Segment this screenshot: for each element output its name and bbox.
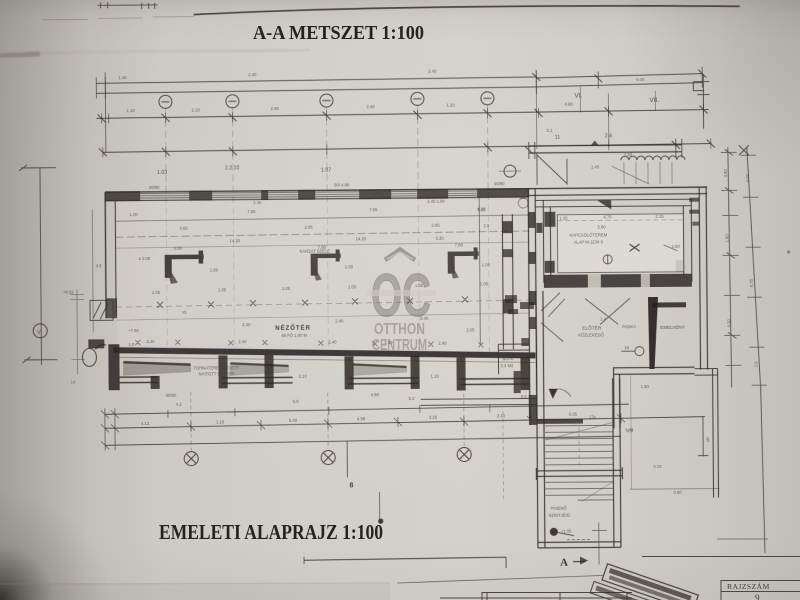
- svg-text:EMELVÉNY: EMELVÉNY: [660, 324, 685, 330]
- svg-text:4.10: 4.10: [726, 319, 731, 328]
- svg-text:7.65: 7.65: [369, 207, 378, 212]
- svg-text:6.35: 6.35: [569, 412, 578, 417]
- svg-text:x5: x5: [182, 310, 187, 315]
- svg-text:1.10: 1.10: [431, 374, 440, 379]
- svg-text:2.40: 2.40: [248, 72, 257, 77]
- svg-text:EMELETI ALAPRAJZ 1:100: EMELETI ALAPRAJZ 1:100: [159, 520, 383, 544]
- svg-text:4.65: 4.65: [179, 226, 188, 231]
- svg-text:4.88: 4.88: [564, 102, 573, 107]
- svg-text:1.10: 1.10: [126, 108, 135, 113]
- svg-text:1.40: 1.40: [625, 427, 634, 432]
- svg-text:48 FŐ 1.90 M: 48 FŐ 1.90 M: [281, 333, 307, 338]
- svg-text:2.05: 2.05: [304, 225, 313, 230]
- svg-text:11: 11: [555, 135, 561, 141]
- svg-text:1.80: 1.80: [724, 234, 729, 243]
- svg-text:2.45: 2.45: [270, 106, 279, 111]
- svg-text:14.20: 14.20: [230, 238, 241, 243]
- svg-text:4.13: 4.13: [141, 421, 150, 426]
- svg-text:2.40 1.90: 2.40 1.90: [427, 199, 445, 204]
- svg-text:V: V: [37, 330, 41, 336]
- svg-text:2.05: 2.05: [431, 223, 440, 228]
- svg-text:NYITOTT LÉGTÉR: NYITOTT LÉGTÉR: [199, 371, 235, 376]
- svg-text:2.45: 2.45: [366, 104, 375, 109]
- svg-text:1.90: 1.90: [477, 207, 486, 212]
- svg-text:1.03: 1.03: [157, 170, 167, 176]
- svg-text:4.88: 4.88: [371, 392, 380, 397]
- svg-text:3.30: 3.30: [435, 236, 444, 241]
- svg-text:2.40: 2.40: [146, 339, 155, 344]
- svg-text:3.25: 3.25: [429, 415, 438, 420]
- svg-text:1.4: 1.4: [600, 316, 607, 321]
- svg-text:2.40: 2.40: [438, 341, 447, 346]
- svg-text:1.20: 1.20: [129, 212, 138, 217]
- svg-text:2.2.10: 2.2.10: [225, 165, 240, 171]
- svg-text:2.0: 2.0: [521, 394, 528, 399]
- svg-text:2.05: 2.05: [466, 327, 475, 332]
- svg-text:1.35: 1.35: [559, 216, 568, 221]
- svg-text:4.05: 4.05: [745, 173, 750, 182]
- svg-text:S: S: [706, 438, 710, 444]
- svg-text:4.88: 4.88: [357, 416, 366, 421]
- svg-text:VII.: VII.: [649, 97, 659, 104]
- svg-text:16: 16: [624, 345, 629, 350]
- svg-text:14: 14: [71, 380, 76, 385]
- svg-text:1.07: 1.07: [321, 168, 331, 174]
- svg-text:4.2: 4.2: [176, 402, 183, 407]
- svg-text:2.60: 2.60: [672, 244, 681, 249]
- svg-text:1.10: 1.10: [216, 419, 225, 424]
- svg-text:VI.: VI.: [574, 93, 582, 100]
- svg-text:2.6: 2.6: [753, 361, 758, 368]
- svg-text:PADKA: PADKA: [622, 324, 636, 329]
- svg-text:ELŐTÉR: ELŐTÉR: [582, 324, 602, 331]
- svg-text:1.05: 1.05: [152, 290, 161, 295]
- svg-text:KAPCSOLÓTEREM: KAPCSOLÓTEREM: [569, 232, 607, 237]
- svg-text:7.65: 7.65: [247, 209, 256, 214]
- svg-text:1.45: 1.45: [591, 164, 600, 169]
- svg-text:1.20: 1.20: [446, 103, 455, 108]
- svg-text:2.9: 2.9: [483, 223, 490, 228]
- svg-text:2.10: 2.10: [191, 108, 200, 113]
- svg-text:KÖZLEKEDŐ: KÖZLEKEDŐ: [578, 332, 604, 337]
- svg-text:SZINTJÉIG: SZINTJÉIG: [549, 513, 570, 518]
- svg-text:1.05: 1.05: [282, 286, 291, 291]
- svg-text:6.00: 6.00: [636, 77, 645, 82]
- svg-text:2.40: 2.40: [253, 200, 262, 205]
- svg-text:KARZAT SZÉLE: KARZAT SZÉLE: [300, 249, 331, 254]
- svg-text:BÜFÉ: BÜFÉ: [502, 356, 513, 361]
- svg-text:1.40: 1.40: [118, 75, 127, 80]
- svg-text:OTTHON: OTTHON: [374, 321, 425, 338]
- svg-text:2.40: 2.40: [238, 339, 247, 344]
- svg-text:A-A METSZET 1:100: A-A METSZET 1:100: [253, 22, 424, 44]
- svg-text:8.70: 8.70: [749, 278, 754, 287]
- svg-text:4.5: 4.5: [96, 263, 103, 268]
- svg-text:2.15: 2.15: [655, 214, 664, 219]
- svg-text:2.40: 2.40: [428, 69, 437, 74]
- svg-text:90/ 4.80: 90/ 4.80: [334, 182, 350, 187]
- svg-text:1.05: 1.05: [480, 281, 489, 286]
- svg-text:1.08: 1.08: [345, 264, 354, 269]
- svg-text:8: 8: [349, 482, 353, 489]
- svg-text:90/90: 90/90: [166, 393, 177, 398]
- svg-text:1.08: 1.08: [482, 262, 491, 267]
- svg-text:1.05: 1.05: [218, 287, 227, 292]
- svg-text:0.90: 0.90: [673, 490, 682, 495]
- svg-text:RAJZSZÁM: RAJZSZÁM: [727, 581, 770, 591]
- svg-text:1.50: 1.50: [624, 152, 633, 157]
- svg-text:90/90: 90/90: [494, 181, 505, 186]
- svg-text:5.60: 5.60: [597, 224, 606, 229]
- svg-text:1.80: 1.80: [641, 384, 650, 389]
- svg-text:4.10: 4.10: [653, 464, 662, 469]
- svg-text:4.70: 4.70: [603, 214, 612, 219]
- svg-text:5.40: 5.40: [289, 418, 298, 423]
- svg-text:x 2.08: x 2.08: [139, 256, 151, 261]
- svg-text:+8.02: +8.02: [63, 290, 74, 295]
- svg-text:5.0: 5.0: [293, 399, 300, 404]
- svg-text:1.05: 1.05: [348, 284, 357, 289]
- svg-text:5.08: 5.08: [174, 246, 183, 251]
- svg-text:3.10: 3.10: [299, 374, 308, 379]
- svg-text:2.40: 2.40: [242, 322, 251, 327]
- svg-text:5.2: 5.2: [409, 396, 416, 401]
- svg-text:2.40: 2.40: [328, 339, 337, 344]
- svg-text:+7.02: +7.02: [128, 328, 139, 333]
- svg-text:2.3 M2: 2.3 M2: [500, 363, 514, 368]
- svg-text:PIHENŐ: PIHENŐ: [551, 506, 568, 511]
- svg-text:3.90: 3.90: [723, 169, 728, 178]
- svg-text:CENTRUM: CENTRUM: [372, 337, 427, 354]
- svg-text:2.4: 2.4: [605, 133, 612, 139]
- svg-text:9.: 9.: [755, 593, 762, 600]
- svg-text:2.10: 2.10: [497, 413, 506, 418]
- svg-text:1.0: 1.0: [128, 342, 135, 347]
- svg-text:2.40: 2.40: [335, 318, 344, 323]
- svg-text:TORNATEREM FELETT: TORNATEREM FELETT: [194, 365, 240, 370]
- svg-text:1.08: 1.08: [210, 267, 219, 272]
- svg-text:ALAP M 1234 X: ALAP M 1234 X: [574, 239, 604, 244]
- svg-text:90/90: 90/90: [149, 185, 160, 190]
- svg-text:7.08: 7.08: [455, 243, 464, 248]
- svg-text:5.1: 5.1: [547, 128, 554, 133]
- svg-text:14.20: 14.20: [355, 236, 366, 241]
- svg-text:A: A: [560, 557, 568, 569]
